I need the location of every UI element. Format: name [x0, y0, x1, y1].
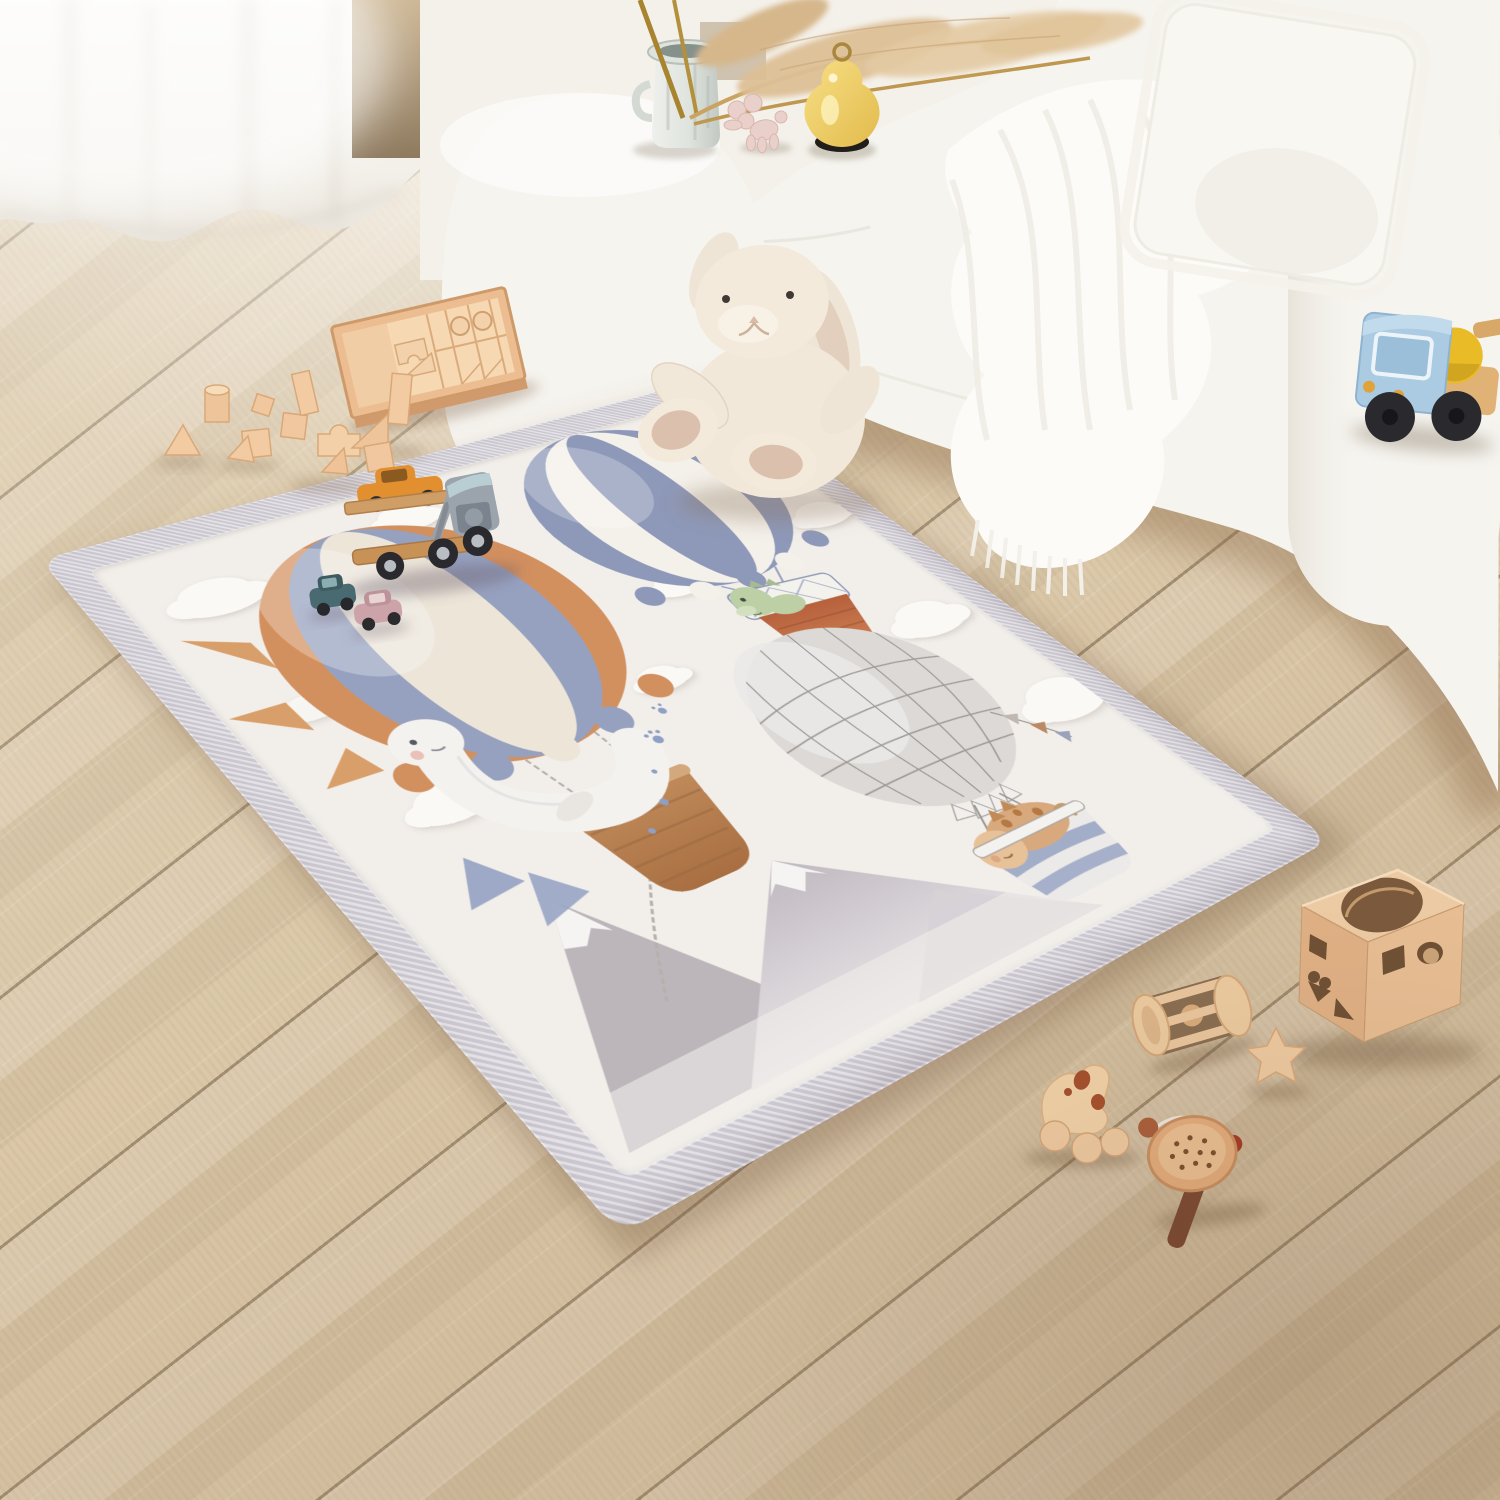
star-block — [1246, 1028, 1310, 1099]
plush-bunny — [629, 225, 891, 522]
push-along-animal — [1024, 1065, 1140, 1168]
toys-layer — [0, 0, 1500, 1500]
block-tray — [325, 284, 542, 442]
roller-rattle — [1126, 967, 1263, 1081]
nursery-photo-scene — [0, 0, 1500, 1500]
car-carrier-truck — [333, 453, 524, 604]
hammer-rattle — [1137, 1103, 1271, 1254]
shape-sorter-cube — [1278, 870, 1482, 1069]
